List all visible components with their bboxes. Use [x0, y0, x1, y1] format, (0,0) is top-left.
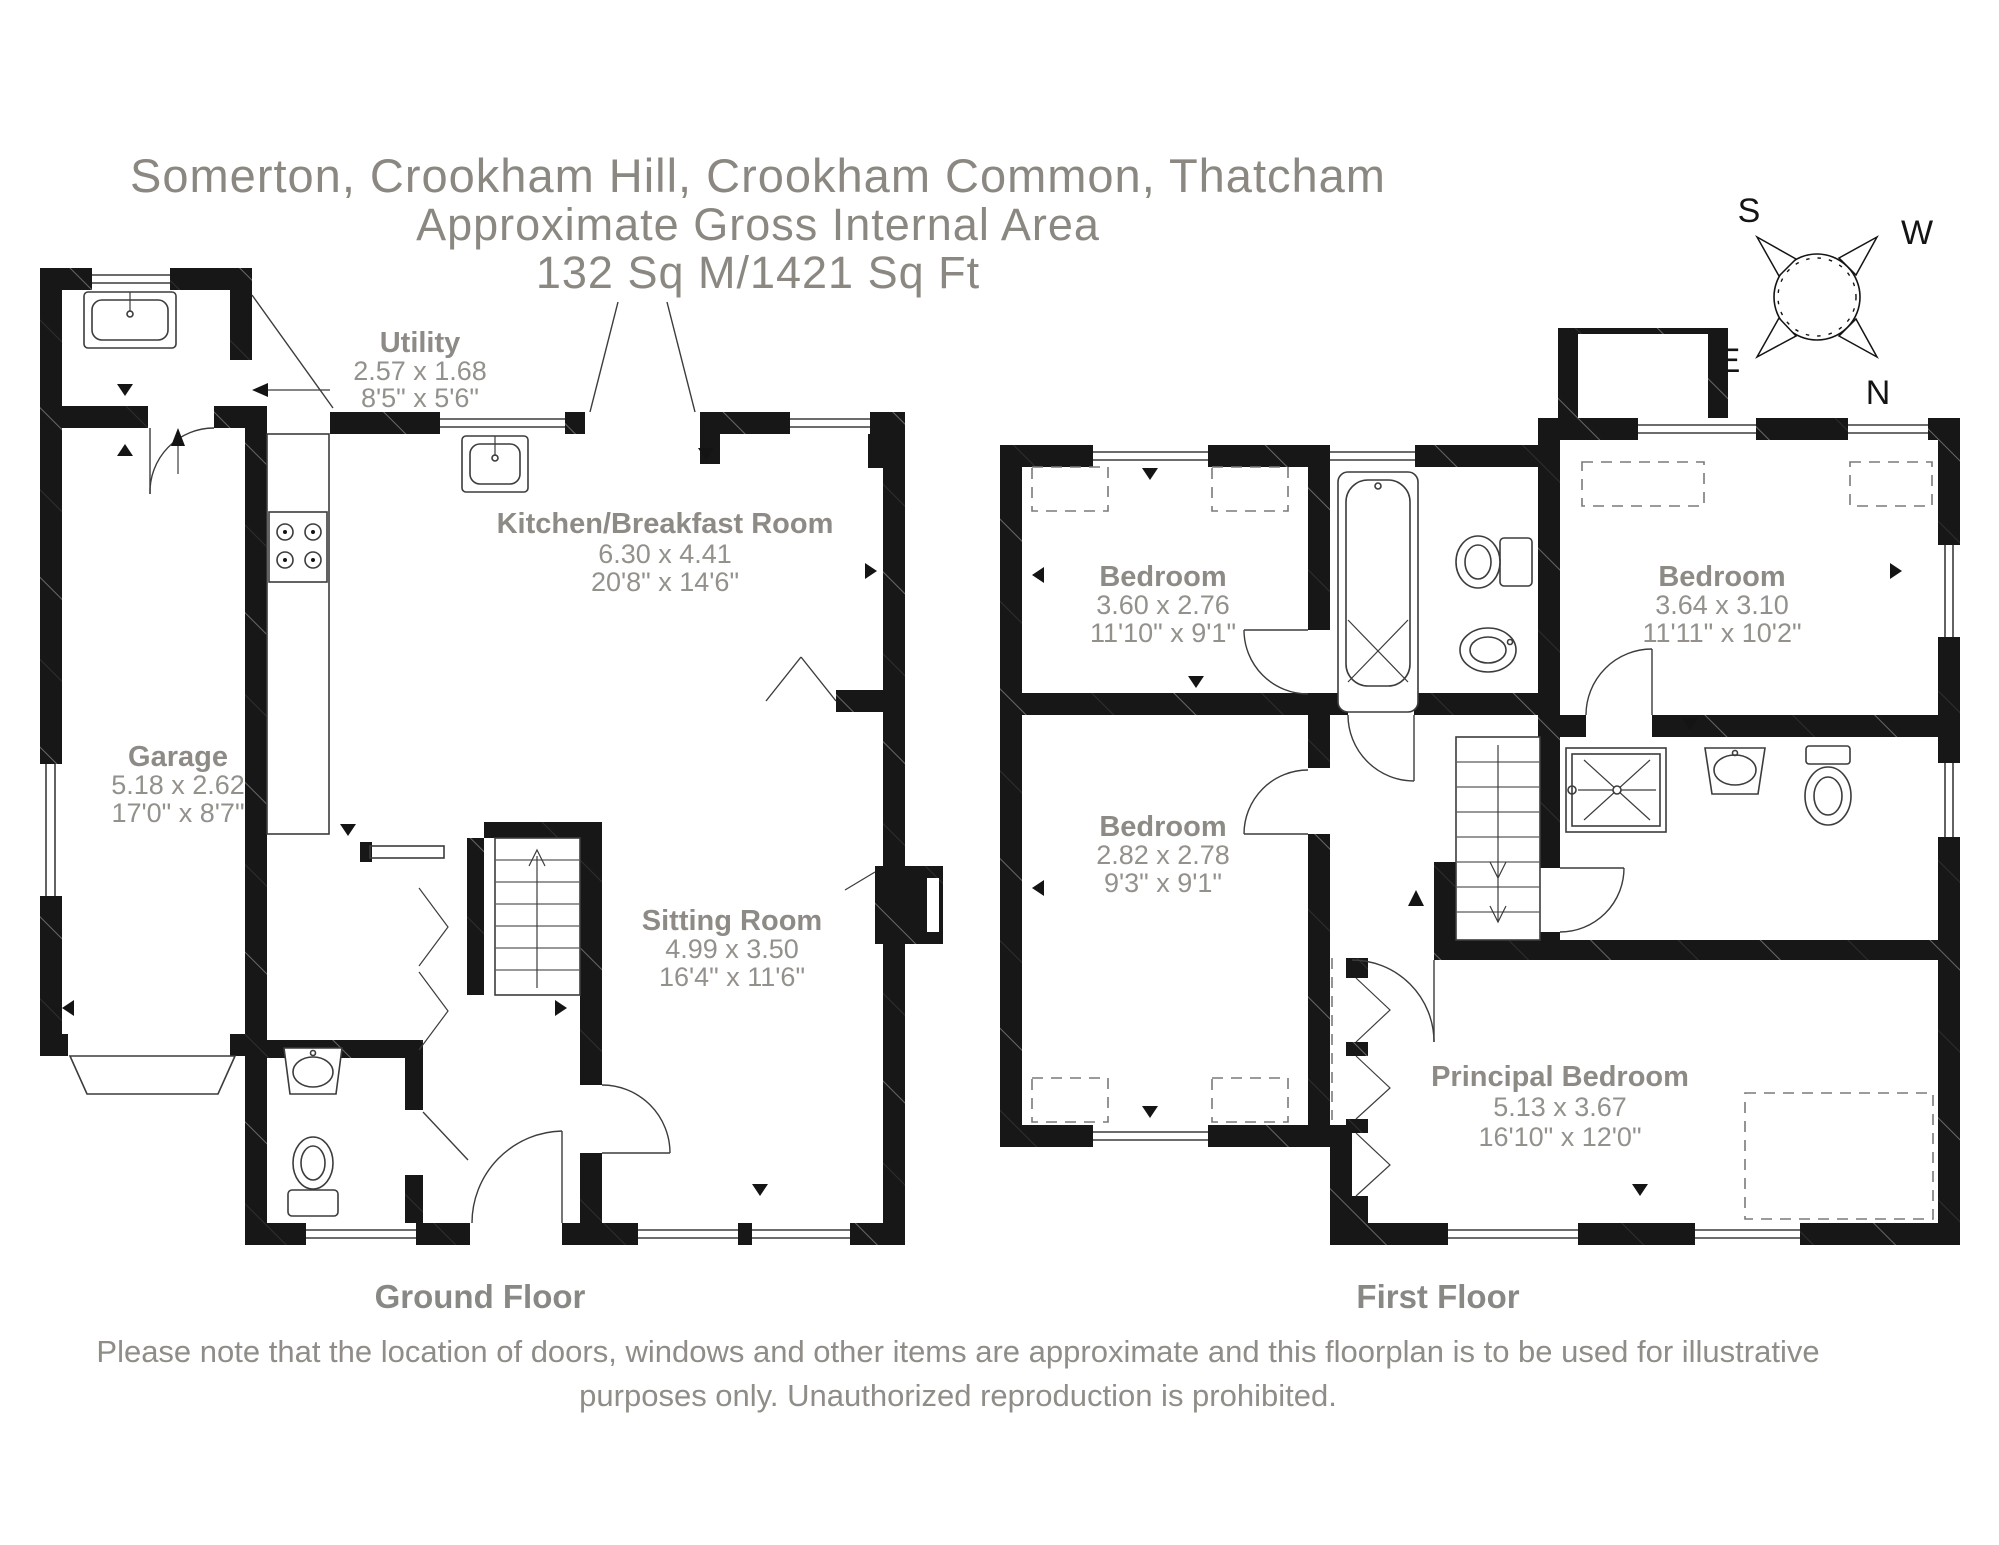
room-name: Bedroom — [1099, 561, 1226, 593]
room-imperial: 16'10" x 12'0" — [1478, 1122, 1641, 1152]
disclaimer: Please note that the location of doors, … — [96, 1334, 1819, 1413]
entrance-arrow-icon — [252, 383, 330, 397]
room-name: Principal Bedroom — [1431, 1061, 1689, 1093]
door-bedroom-3 — [1244, 770, 1308, 834]
room-name: Sitting Room — [642, 905, 822, 937]
shower-room-toilet — [1805, 746, 1851, 825]
door-bathroom — [1348, 715, 1414, 781]
step-arrow-icon — [171, 428, 185, 474]
wc-toilet — [288, 1137, 338, 1216]
room-metric: 5.18 x 2.62 — [111, 770, 245, 800]
room-name: Bedroom — [1099, 811, 1226, 843]
room-label-bedroom-1: Bedroom 3.60 x 2.76 11'10" x 9'1" — [1090, 561, 1236, 648]
door-hall-sitting — [602, 1085, 670, 1153]
floorplan-drawing: Somerton, Crookham Hill, Crookham Common… — [0, 0, 1999, 1545]
room-label-sitting-room: Sitting Room 4.99 x 3.50 16'4" x 11'6" — [642, 905, 822, 992]
french-doors — [590, 302, 695, 412]
breakfast-bar — [370, 846, 444, 858]
shower — [1566, 748, 1666, 832]
floorplan-page: Somerton, Crookham Hill, Crookham Common… — [0, 0, 1999, 1545]
door-bedroom-1 — [1244, 630, 1308, 694]
room-label-bedroom-2: Bedroom 3.64 x 3.10 11'11" x 10'2" — [1642, 561, 1801, 648]
room-label-kitchen: Kitchen/Breakfast Room 6.30 x 4.41 20'8"… — [497, 508, 834, 597]
kitchen-counter — [267, 434, 444, 858]
door-bedroom-2 — [1586, 649, 1652, 715]
page-title: Somerton, Crookham Hill, Crookham Common… — [130, 149, 1386, 202]
bathroom-toilet — [1456, 536, 1532, 588]
title-block: Somerton, Crookham Hill, Crookham Common… — [130, 149, 1386, 298]
door-utility-hall — [150, 428, 214, 494]
door-shower-room — [1560, 868, 1624, 932]
room-label-garage: Garage 5.18 x 2.62 17'0" x 8'7" — [111, 741, 245, 828]
title-area: 132 Sq M/1421 Sq Ft — [536, 247, 980, 298]
first-floor-doors — [1244, 630, 1652, 1042]
title-subtitle: Approximate Gross Internal Area — [416, 199, 1100, 250]
first-floor-staircase — [1456, 737, 1540, 940]
kitchen-sink — [462, 436, 528, 492]
ground-floor-plan: Utility 2.57 x 1.68 8'5" x 5'6" Kitchen/… — [40, 268, 943, 1315]
utility-sink — [84, 292, 176, 348]
fireplace — [845, 872, 875, 890]
eaves-zigzag-wall — [1356, 978, 1390, 1196]
compass-south-label: S — [1738, 192, 1761, 230]
room-imperial: 11'11" x 10'2" — [1642, 618, 1801, 648]
room-imperial: 17'0" x 8'7" — [111, 798, 244, 828]
room-metric: 3.60 x 2.76 — [1096, 590, 1230, 620]
room-name: Garage — [128, 741, 228, 773]
room-metric: 2.57 x 1.68 — [353, 356, 487, 386]
bathtub — [1338, 472, 1418, 712]
room-imperial: 11'10" x 9'1" — [1090, 618, 1236, 648]
wc-basin — [284, 1048, 342, 1094]
room-metric: 6.30 x 4.41 — [598, 539, 732, 569]
disclaimer-line-2: purposes only. Unauthorized reproduction… — [579, 1378, 1337, 1413]
room-imperial: 9'3" x 9'1" — [1104, 868, 1222, 898]
compass-rose-icon: S W E N — [1718, 192, 1933, 412]
disclaimer-line-1: Please note that the location of doors, … — [96, 1334, 1819, 1369]
room-imperial: 20'8" x 14'6" — [591, 567, 739, 597]
room-label-principal-bedroom: Principal Bedroom 5.13 x 3.67 16'10" x 1… — [1431, 1061, 1689, 1152]
compass-west-label: W — [1901, 214, 1933, 252]
room-label-utility: Utility 2.57 x 1.68 8'5" x 5'6" — [353, 327, 487, 413]
bifold-cupboard-doors — [419, 888, 448, 1050]
hob — [269, 512, 327, 582]
room-metric: 3.64 x 3.10 — [1655, 590, 1789, 620]
room-metric: 4.99 x 3.50 — [665, 934, 799, 964]
first-floor-label: First Floor — [1356, 1278, 1519, 1315]
garage-door — [70, 1056, 235, 1094]
room-name: Bedroom — [1658, 561, 1785, 593]
room-label-bedroom-3: Bedroom 2.82 x 2.78 9'3" x 9'1" — [1096, 811, 1230, 898]
compass-north-label: N — [1866, 374, 1891, 412]
shower-room-basin — [1705, 748, 1765, 794]
wc-door — [423, 1112, 468, 1160]
room-metric: 5.13 x 3.67 — [1493, 1092, 1627, 1122]
room-imperial: 8'5" x 5'6" — [361, 383, 479, 413]
front-door — [472, 1131, 562, 1223]
ground-floor-label: Ground Floor — [375, 1278, 586, 1315]
room-metric: 2.82 x 2.78 — [1096, 840, 1230, 870]
room-imperial: 16'4" x 11'6" — [659, 962, 805, 992]
room-name: Kitchen/Breakfast Room — [497, 508, 834, 540]
staircase — [495, 838, 580, 995]
room-name: Utility — [380, 327, 461, 359]
first-floor-plan: Bedroom 3.60 x 2.76 11'10" x 9'1" Bedroo… — [1000, 328, 1960, 1315]
double-doors-sitting — [766, 657, 836, 701]
bathroom-basin — [1460, 628, 1516, 672]
